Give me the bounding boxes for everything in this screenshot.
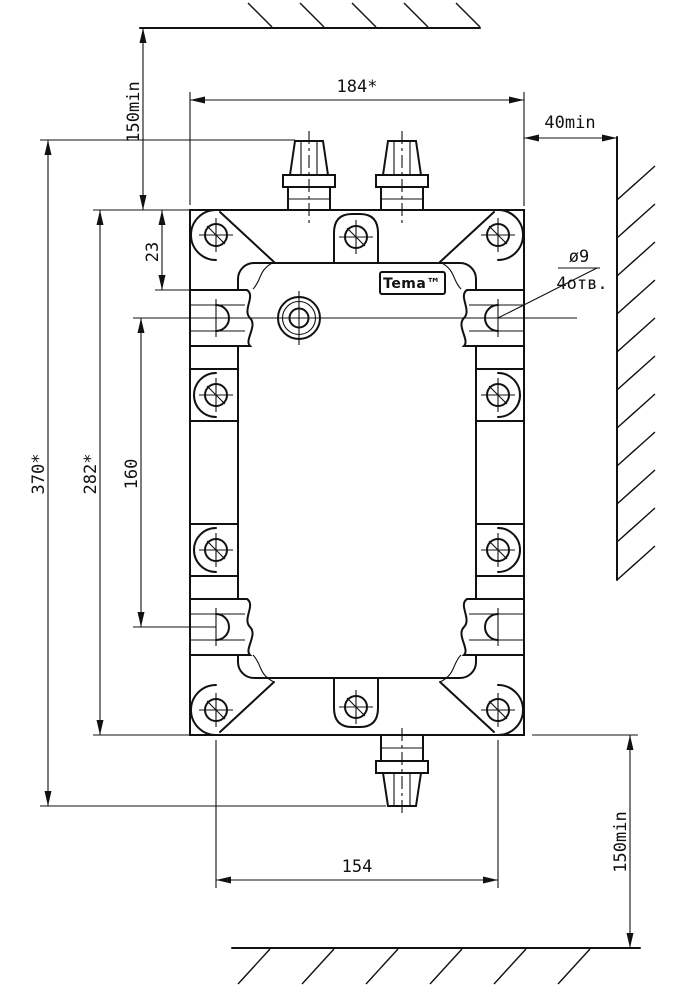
hole-note-count: 4отв. [556,274,607,294]
floor [232,948,640,984]
box-outline [190,210,524,735]
dim-label-overall-width: 184* [337,77,378,97]
floor-hatching [238,949,590,984]
junction-box: Tema™ [133,131,577,817]
ceiling-hatching [248,3,480,27]
ceiling-wall [140,3,480,28]
dim-label-slot-hspacing: 154 [342,857,373,877]
brand-logo-text: Tema™ [383,276,441,292]
cable-gland-top-right [376,131,428,224]
dim-label-body-height: 282* [81,454,101,495]
junction-box-installation-drawing: Tema™ 150min 184* 40mi [0,0,689,1000]
dim-label-slot-vspacing: 160 [122,459,142,490]
center-tabs [334,214,378,727]
right-wall [617,137,655,580]
dim-label-top-clearance: 150min [124,81,144,142]
keyhole-slot-lower-right [461,599,524,655]
box-lid [238,263,476,678]
corner-ears [191,210,523,735]
cable-gland-bottom [376,728,428,817]
cable-gland-top-left [283,131,335,224]
dim-label-side-clearance: 40min [544,113,595,133]
hole-note-diameter: ø9 [569,247,589,267]
dim-label-slot-offset: 23 [143,242,163,262]
brand-plate: Tema™ [380,272,445,294]
side-lugs [190,369,524,576]
technical-drawing-page: Tema™ 150min 184* 40mi [0,0,689,1000]
dim-label-overall-height: 370* [29,454,49,495]
right-wall-hatching [617,166,655,580]
dim-label-bottom-clearance: 150min [611,811,631,872]
